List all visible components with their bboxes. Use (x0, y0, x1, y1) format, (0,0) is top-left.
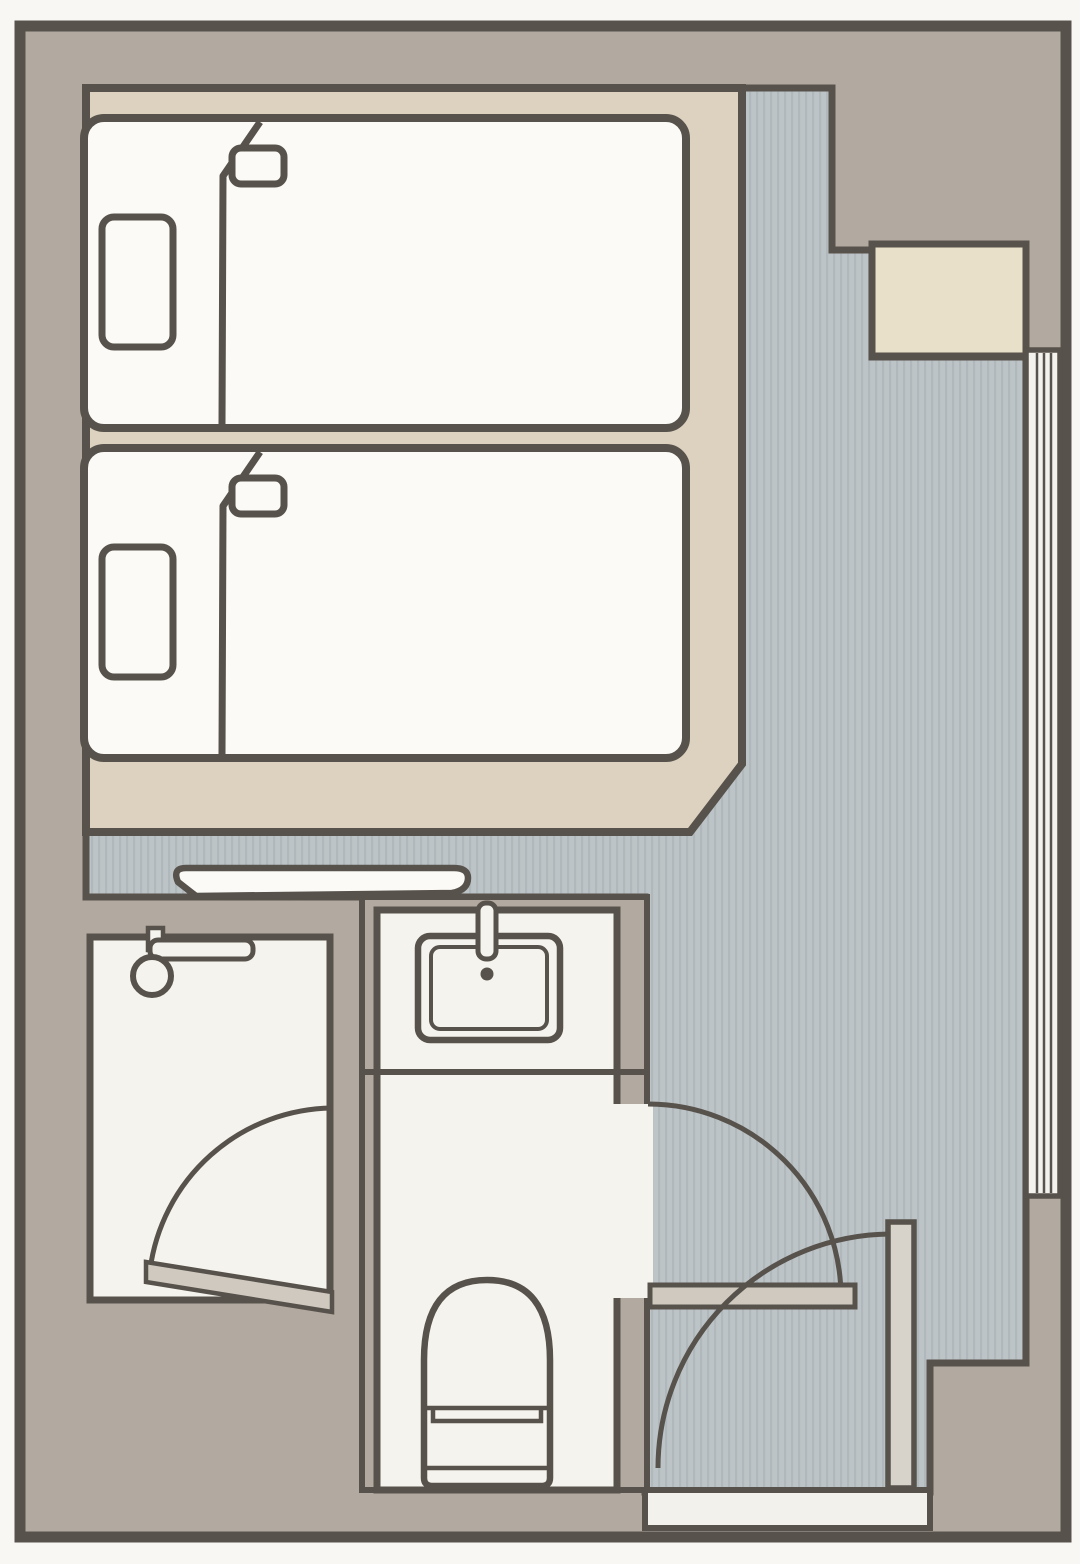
bed-1-blanket-fold (232, 148, 284, 184)
faucet-icon (478, 903, 496, 959)
bed-1 (84, 118, 686, 428)
toilet-room-doorway (610, 1104, 653, 1298)
desk-console (176, 868, 468, 896)
toilet-room (362, 897, 653, 1490)
closet (872, 244, 1026, 356)
shower-arm-icon (150, 940, 253, 959)
floor-plan (0, 0, 1080, 1564)
bed-2-pillow (102, 547, 173, 677)
toilet-door-leaf (650, 1285, 855, 1307)
toilet-bowl (424, 1280, 550, 1486)
shower-room (90, 928, 332, 1312)
bed-1-pillow (102, 217, 173, 347)
shower-head-icon (133, 957, 171, 995)
entrance-threshold (645, 1490, 930, 1528)
window-right (1026, 350, 1060, 1196)
bed-2-blanket-fold (232, 478, 284, 514)
faucet-drip-icon (481, 968, 494, 981)
entrance-door-leaf (888, 1222, 914, 1488)
shower-room-interior (90, 937, 330, 1300)
bed-2 (84, 448, 686, 758)
floor-plan-drawing (0, 0, 1080, 1564)
